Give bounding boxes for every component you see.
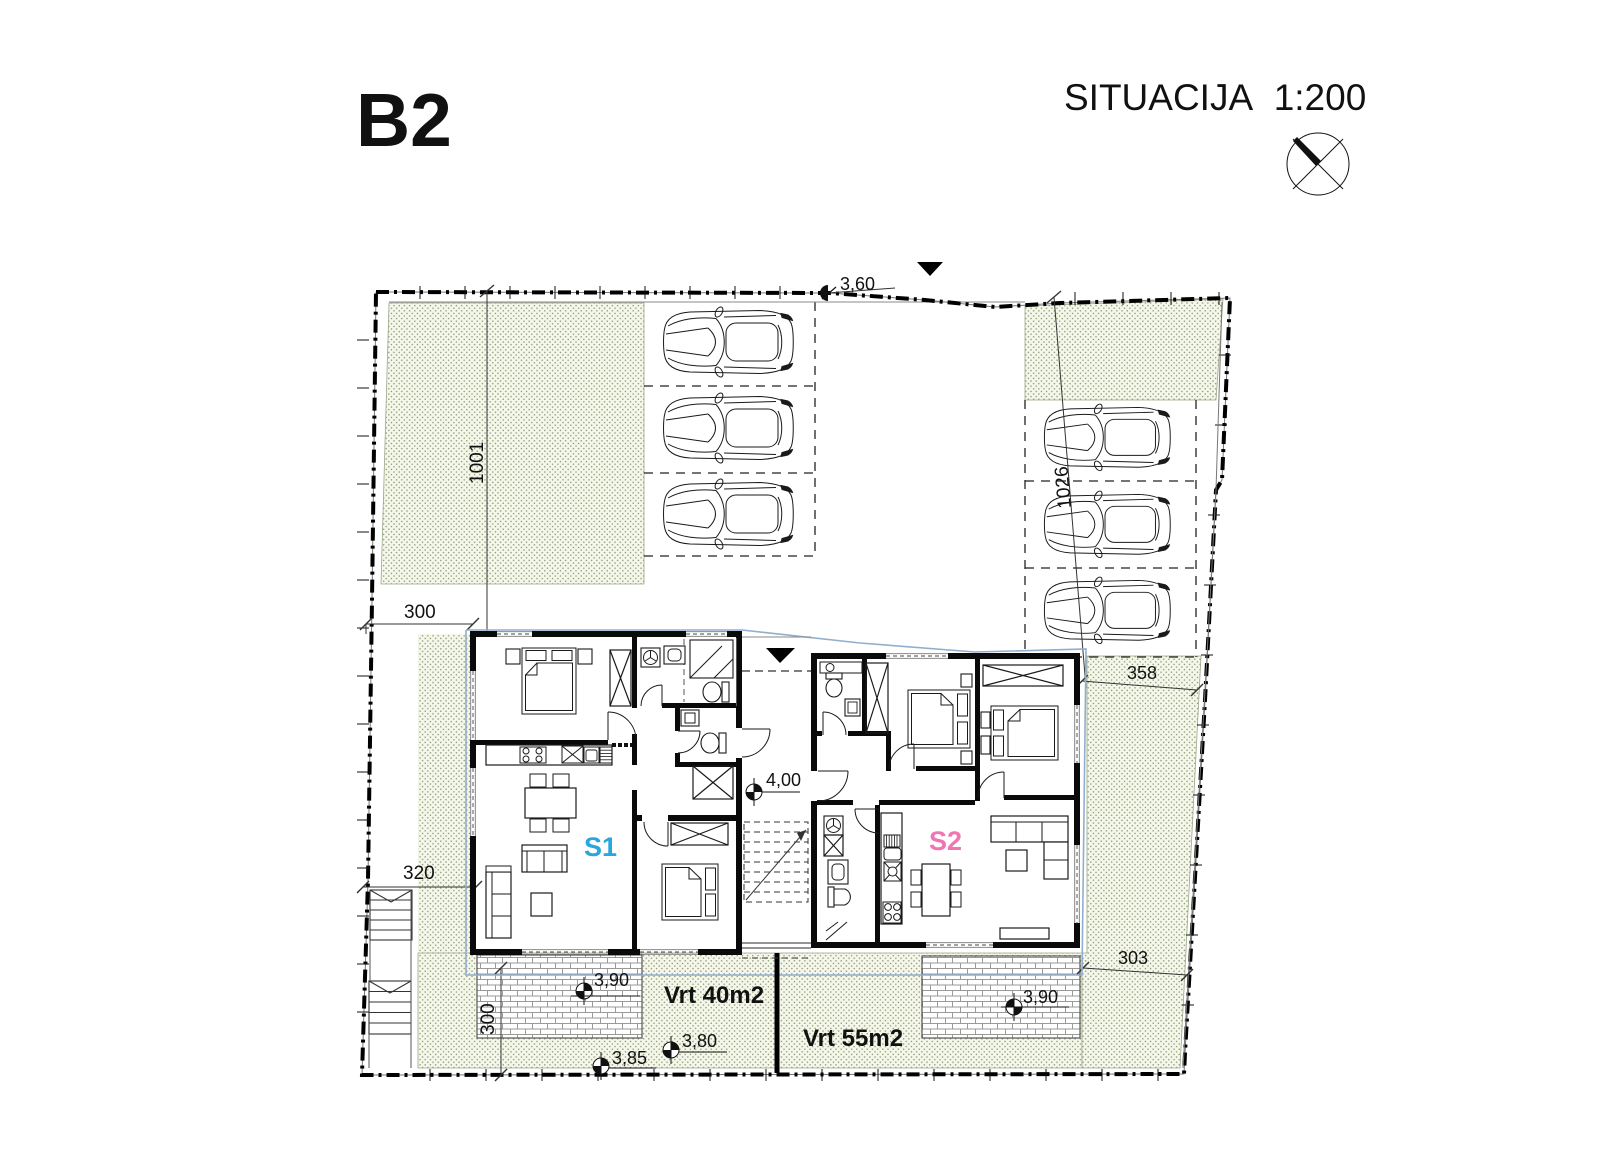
svg-text:SITUACIJA 1:200: SITUACIJA 1:200 <box>1064 77 1366 118</box>
svg-text:3,60: 3,60 <box>840 274 875 294</box>
svg-text:3,85: 3,85 <box>612 1048 647 1068</box>
svg-text:300: 300 <box>478 1003 499 1035</box>
svg-text:1026: 1026 <box>1051 465 1076 509</box>
svg-text:300: 300 <box>404 602 436 623</box>
svg-text:303: 303 <box>1118 948 1148 968</box>
svg-text:4,00: 4,00 <box>766 770 801 790</box>
svg-text:B2: B2 <box>356 78 452 162</box>
svg-text:S1: S1 <box>584 832 617 862</box>
svg-text:3,90: 3,90 <box>1023 987 1058 1007</box>
svg-text:S2: S2 <box>929 826 962 856</box>
svg-text:3,90: 3,90 <box>594 970 629 990</box>
svg-text:1001: 1001 <box>467 442 488 484</box>
svg-text:Vrt 40m2: Vrt 40m2 <box>664 982 764 1009</box>
svg-text:358: 358 <box>1127 663 1157 683</box>
svg-text:Vrt 55m2: Vrt 55m2 <box>803 1025 903 1052</box>
svg-text:3,80: 3,80 <box>682 1031 717 1051</box>
svg-text:320: 320 <box>403 863 435 884</box>
